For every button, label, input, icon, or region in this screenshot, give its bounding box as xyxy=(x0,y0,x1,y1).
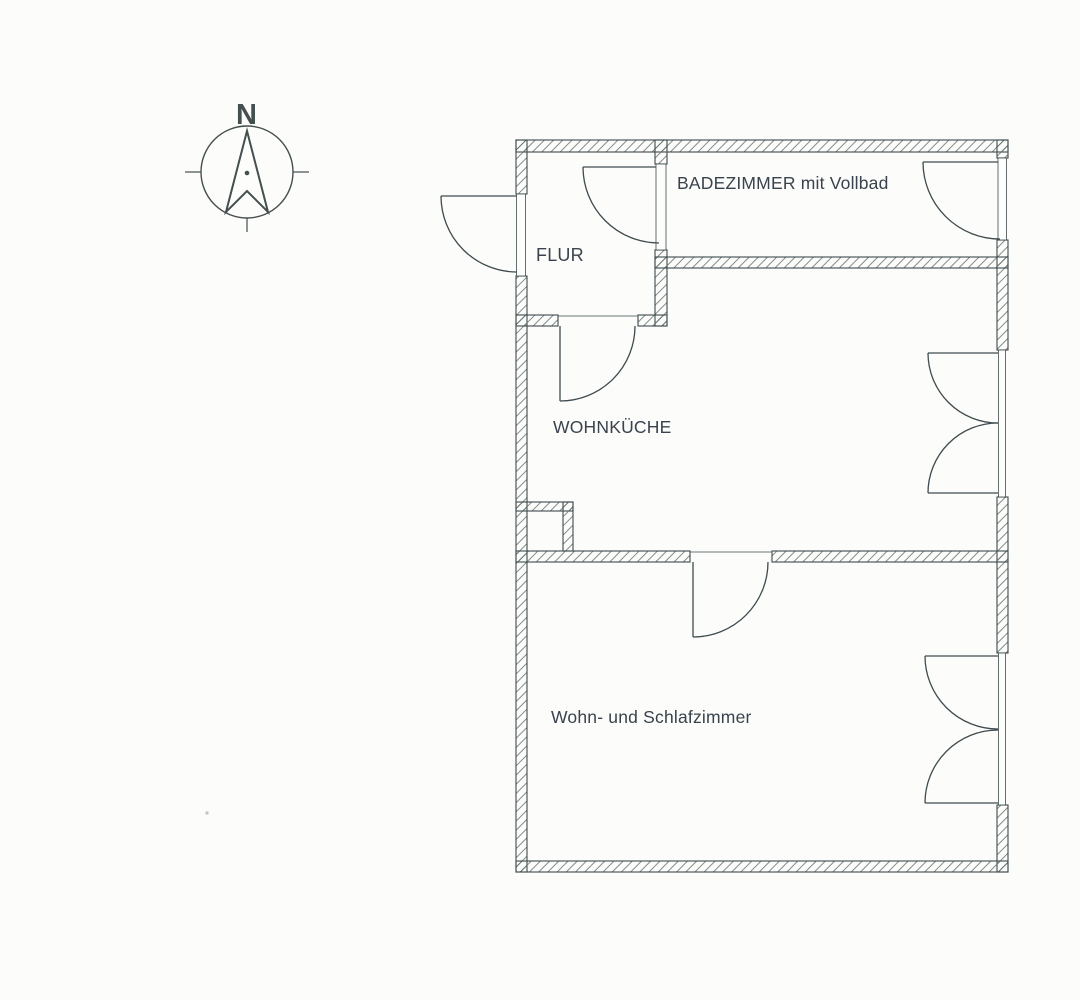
wall-flur-bottom-right xyxy=(638,315,667,326)
room-label-wohnkueche: WOHNKÜCHE xyxy=(553,417,671,437)
wall-flur-bottom-left xyxy=(516,315,558,326)
compass-north-label: N xyxy=(236,99,258,131)
kitchen-double-window xyxy=(928,353,998,493)
flur-bad-door-arc xyxy=(583,167,659,243)
wall-flur-right-upper xyxy=(655,140,667,164)
kitchen-window-glazing xyxy=(999,350,1006,497)
bedroom-double-window xyxy=(925,656,998,803)
flur-kitchen-door-arc xyxy=(560,326,635,401)
bedroom-window-glazing xyxy=(999,653,1006,805)
kitchen-bedroom-door xyxy=(693,562,768,637)
entry-door-arc xyxy=(441,196,517,272)
wall-outer-right-b xyxy=(997,497,1008,653)
wall-divider-right xyxy=(772,551,1008,562)
wall-outer-left-upper xyxy=(516,140,527,194)
room-label-badezimmer: BADEZIMMER mit Vollbad xyxy=(677,173,889,193)
flur-kitchen-door xyxy=(560,326,635,401)
wall-divider-left xyxy=(516,551,690,562)
bedroom-window-top-arc xyxy=(925,656,998,729)
wall-outer-bottom xyxy=(516,861,1008,872)
wall-shaft-right xyxy=(563,502,573,551)
wall-outer-left-lower xyxy=(516,276,527,872)
entry-door xyxy=(441,196,517,272)
wall-bad-bottom xyxy=(655,257,1008,268)
room-labels: BADEZIMMER mit Vollbad FLUR WOHNKÜCHE Wo… xyxy=(536,173,889,727)
wall-outer-right-corner xyxy=(997,140,1008,158)
bad-exterior-door xyxy=(923,162,1000,239)
bedroom-window-bottom-arc xyxy=(925,730,998,803)
flur-bad-door-opening xyxy=(656,164,666,250)
compass-center-dot xyxy=(245,171,250,176)
entry-door-frame xyxy=(517,194,526,276)
wall-outer-top xyxy=(516,140,1008,152)
bad-exterior-door-opening xyxy=(998,158,1007,240)
north-compass: N xyxy=(185,99,309,232)
flur-bad-door xyxy=(583,167,659,243)
bad-exterior-door-arc xyxy=(923,162,1000,239)
room-label-wohn-schlafzimmer: Wohn- und Schlafzimmer xyxy=(551,707,752,727)
kitchen-window-bottom-arc xyxy=(928,423,998,493)
walls xyxy=(516,140,1008,872)
scanned-floorplan-page: N BADEZIMMER mit Vollbad FLUR WOHNKÜCHE … xyxy=(0,0,1080,1000)
floor-plan: N BADEZIMMER mit Vollbad FLUR WOHNKÜCHE … xyxy=(0,0,1080,1000)
kitchen-bedroom-door-arc xyxy=(693,562,768,637)
scan-speck xyxy=(205,811,208,814)
room-label-flur: FLUR xyxy=(536,245,584,265)
kitchen-window-top-arc xyxy=(928,353,998,423)
